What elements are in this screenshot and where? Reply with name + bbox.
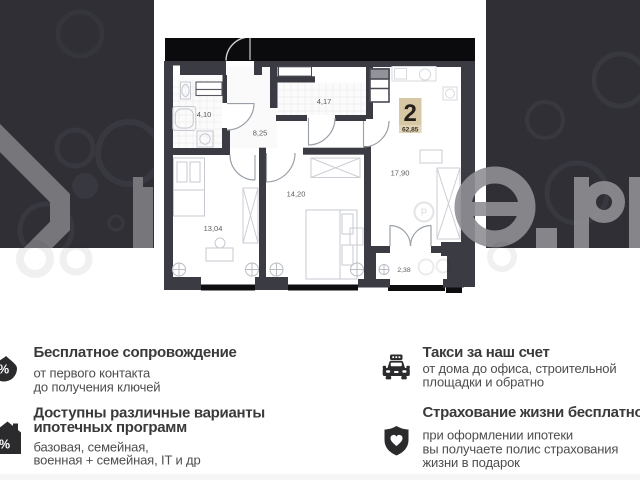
svg-text:62,85: 62,85 bbox=[402, 127, 419, 134]
svg-text:площадки и обратно: площадки и обратно bbox=[423, 375, 544, 390]
svg-text:%: % bbox=[0, 363, 9, 377]
svg-text:Страхование жизни бесплатно: Страхование жизни бесплатно bbox=[423, 404, 640, 421]
svg-text:14,20: 14,20 bbox=[287, 190, 306, 199]
svg-text:жизни в подарок: жизни в подарок bbox=[423, 455, 521, 470]
svg-text:ипотечных программ: ипотечных программ bbox=[34, 419, 188, 436]
svg-text:4,17: 4,17 bbox=[317, 97, 332, 106]
svg-text:до получения ключей: до получения ключей bbox=[34, 380, 161, 395]
svg-text:17,90: 17,90 bbox=[391, 169, 410, 178]
svg-text:2: 2 bbox=[404, 100, 417, 127]
svg-text:при оформлении ипотеки: при оформлении ипотеки bbox=[423, 428, 574, 443]
svg-text:военная + семейная, IT и др: военная + семейная, IT и др bbox=[34, 453, 201, 468]
svg-text:2,38: 2,38 bbox=[397, 267, 410, 274]
svg-text:13,04: 13,04 bbox=[204, 224, 223, 233]
svg-text:8,25: 8,25 bbox=[253, 129, 268, 138]
svg-text:4,10: 4,10 bbox=[197, 110, 212, 119]
svg-text:%: % bbox=[0, 438, 10, 452]
svg-text:Такси за наш счет: Такси за наш счет bbox=[423, 344, 550, 361]
svg-text:Р: Р bbox=[421, 208, 428, 219]
svg-text:от первого контакта: от первого контакта bbox=[34, 366, 152, 381]
svg-text:Бесплатное сопровождение: Бесплатное сопровождение bbox=[34, 344, 237, 361]
